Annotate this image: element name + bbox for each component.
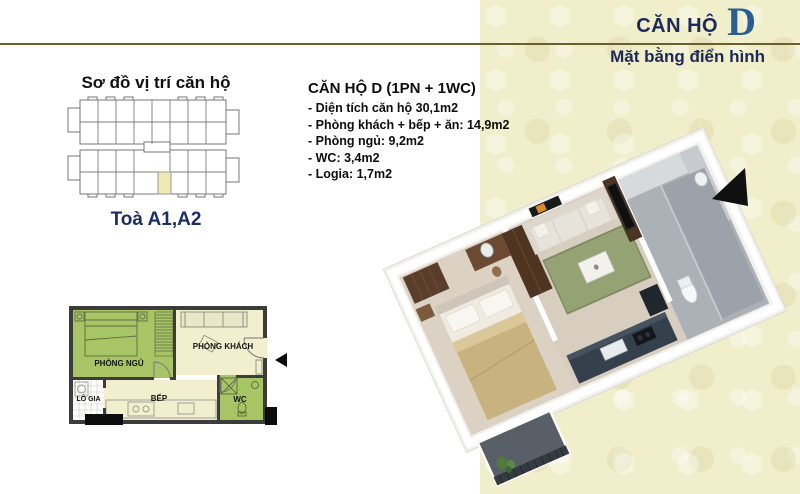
apartment-title: CĂN HỘ D — [636, 2, 756, 42]
building-endcap — [226, 158, 239, 182]
floor-plan-2d: PHÒNG NGỦ PHÒNG KHÁCH LÔ GIA BẾP WC — [58, 300, 293, 435]
brochure-page: CĂN HỘ D Mặt bằng điển hình Sơ đồ vị trí… — [0, 0, 800, 494]
building-endcap — [226, 110, 239, 134]
page-subtitle: Mặt bằng điển hình — [610, 47, 765, 67]
spec-item: - Diện tích căn hộ 30,1m2 — [308, 100, 503, 117]
living-label: PHÒNG KHÁCH — [193, 342, 254, 351]
floor-plan-3d — [325, 125, 800, 494]
building-endcap — [68, 108, 80, 132]
bedroom-label: PHÒNG NGỦ — [94, 359, 144, 368]
kitchen-label: BẾP — [151, 393, 168, 403]
location-map-title: Sơ đồ vị trí căn hộ — [0, 73, 312, 93]
wc-label: WC — [233, 395, 247, 404]
apartment-title-letter: D — [727, 2, 756, 42]
wall-section-marker — [265, 407, 277, 425]
tower-label: Toà A1,A2 — [0, 209, 312, 231]
highlighted-unit-d — [158, 172, 171, 194]
building-core — [144, 142, 170, 152]
entry-opening — [262, 338, 268, 358]
gold-divider-line — [0, 43, 800, 45]
apartment-title-prefix: CĂN HỘ — [636, 15, 718, 42]
wall-section-marker — [85, 414, 123, 425]
building-endcap — [68, 156, 80, 180]
loggia-label: LÔ GIA — [76, 394, 100, 403]
specs-title: CĂN HỘ D (1PN + 1WC) — [308, 80, 503, 97]
sofa-2d — [181, 312, 247, 327]
building-location-diagram — [58, 94, 258, 206]
entry-arrow-icon — [275, 353, 287, 367]
